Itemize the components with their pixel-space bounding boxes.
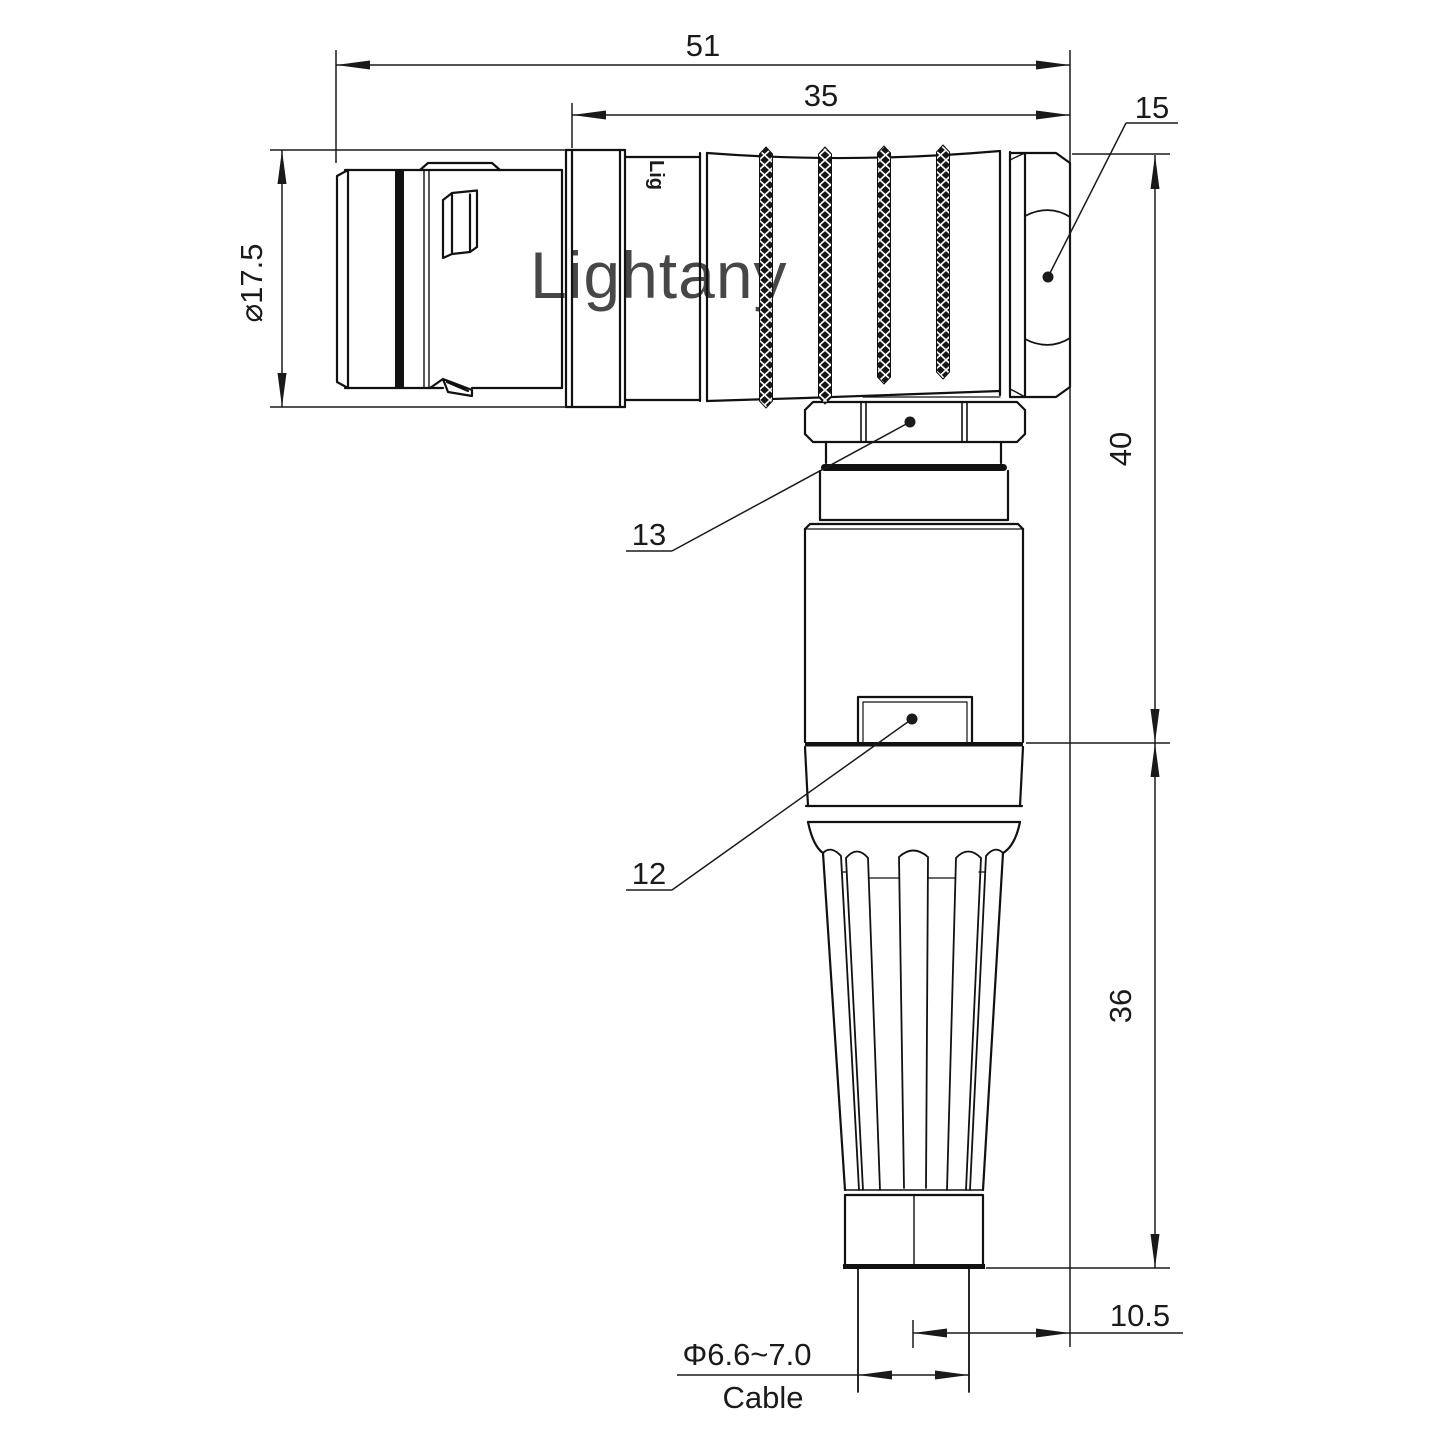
dim-36-label: 36: [1103, 989, 1138, 1023]
leader-dot-15: [1043, 272, 1054, 283]
knurl-band: [878, 146, 891, 384]
dim-dia175-label: ⌀17.5: [234, 244, 269, 323]
technical-drawing-page: Lightany: [0, 0, 1440, 1440]
ref-13-label: 13: [632, 517, 666, 552]
cable-label: Cable: [723, 1380, 804, 1415]
knurl-bands: [760, 145, 950, 408]
leader-dot-13: [905, 417, 916, 428]
hex-nut: [1000, 152, 1070, 397]
dim-35-label: 35: [804, 78, 838, 113]
dim-cable-dia-label: Φ6.6~7.0: [682, 1337, 811, 1372]
front-sleeve: [337, 163, 562, 396]
connector-dimension-drawing: Lightany: [0, 0, 1440, 1440]
dim-105-label: 10.5: [1110, 1298, 1170, 1333]
knurl-band: [760, 147, 773, 408]
watermark-text: Lightany: [530, 238, 788, 312]
dim-51-label: 51: [686, 28, 720, 63]
leader-15: [1048, 123, 1178, 277]
ref-12-label: 12: [632, 856, 666, 891]
keying-window: [443, 191, 477, 259]
strain-relief-boot: [805, 747, 1023, 1190]
engraving-text: Lig: [645, 160, 667, 190]
leader-dot-12: [907, 714, 918, 725]
step-edge: [805, 742, 1023, 747]
knurl-band: [819, 147, 832, 404]
dimension-labels: 51 35 15 ⌀17.5 40 36 13 12 10.5 Φ6.6~7.0…: [234, 28, 1170, 1415]
dim-40-label: 40: [1103, 432, 1138, 466]
ext-dia175: [270, 150, 566, 407]
connector-outline: [337, 150, 1070, 1392]
knurl-band: [937, 145, 950, 379]
ref-15-label: 15: [1135, 90, 1169, 125]
neck-section: [820, 442, 1008, 520]
sleeve-key-band: [395, 170, 404, 388]
main-cylinder: [805, 524, 1023, 747]
cable-sleeve: [843, 1195, 985, 1269]
